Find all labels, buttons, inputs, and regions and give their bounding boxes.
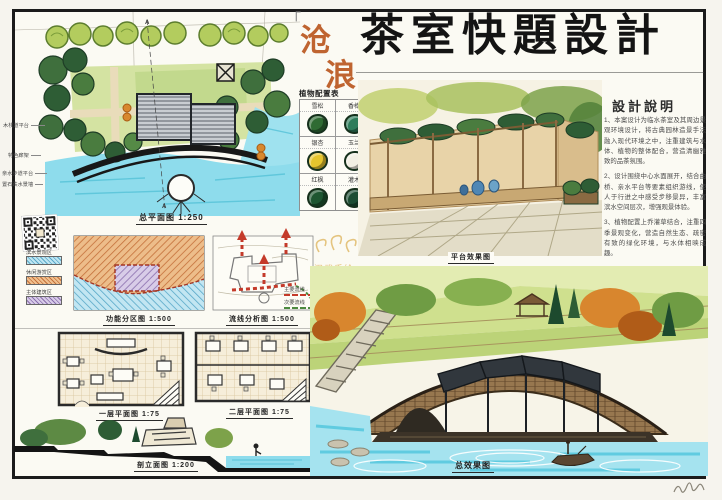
terrace-perspective [358, 80, 602, 256]
zone-legend: 滨水景观区 休闲游赏区 主体建筑区 [26, 249, 72, 309]
plan-annotation: 特色廊架 [8, 152, 41, 159]
final-render-caption: 总效果图 [452, 460, 494, 473]
design-note-item: 3、植物配置上乔灌草结合，注重四季景观变化，营造自然生态、疏密有致的绿化环境，与… [604, 218, 706, 259]
building-annex [191, 104, 235, 144]
zone-swatch [26, 256, 62, 265]
design-notes-header: 設計說明 [612, 96, 676, 115]
building-main [137, 94, 191, 140]
plant-cell: 雪松 [300, 100, 336, 136]
zone-legend-item: 主体建筑区 [26, 289, 72, 305]
section-divider-line [15, 328, 311, 329]
title-divider [356, 72, 704, 73]
plant-swatch [307, 151, 328, 171]
floor-plan-level2 [194, 331, 312, 403]
plant-cell: 红枫 [300, 174, 336, 210]
design-notes: 1、本案设计为临水茶室及其周边景观环境设计，将古典园林造景手法融入现代环境之中，… [604, 116, 706, 264]
section-building [142, 418, 196, 446]
tree-row [46, 22, 288, 48]
plan-annotation: 木栈道平台 [3, 122, 45, 129]
section-trees [20, 419, 140, 447]
final-render [310, 266, 708, 476]
zone-legend-item: 休闲游赏区 [26, 269, 72, 285]
circulation-diagram-caption: 流线分析图 1:500 [226, 314, 298, 326]
section-mark-top: A [145, 20, 149, 26]
function-zone-diagram [73, 235, 205, 311]
zone-swatch [26, 296, 62, 305]
watermark-crown-icon [311, 232, 357, 256]
function-diagram-caption: 功能分区图 1:500 [103, 314, 175, 326]
terrace-caption: 平台效果图 [448, 252, 494, 264]
presentation-board: 「 沧 浪 亭 茶室快題設計 [0, 0, 722, 500]
design-note-item: 2、设计围绕中心水面展开，结合曲桥、亲水平台等要素组织游线，使人于行进之中感受步… [604, 172, 706, 213]
section-mark-bottom: A [162, 204, 166, 210]
plant-swatch [307, 188, 328, 208]
zone-building [115, 265, 159, 291]
board-title: 茶室快題設計 [360, 14, 710, 58]
plant-swatch [307, 114, 328, 134]
section-water [226, 456, 310, 468]
design-note-item: 1、本案设计为临水茶室及其周边景观环境设计，将古典园林造景手法融入现代环境之中，… [604, 116, 706, 167]
section-caption: 剖立面图 1:200 [134, 460, 198, 472]
artist-signature [672, 480, 706, 496]
site-master-plan [15, 12, 300, 216]
figure [254, 444, 261, 456]
plan-annotation: 亲水步道平台 [2, 170, 47, 177]
site-plan-caption: 总平面图 1:250 [136, 212, 207, 225]
floor-plan-level1 [57, 331, 185, 407]
plant-cell: 银杏 [300, 137, 336, 173]
qr-code [21, 214, 59, 252]
pergola [217, 64, 234, 81]
fountain [168, 175, 194, 201]
zone-legend-item: 滨水景观区 [26, 249, 72, 265]
zone-swatch [26, 276, 62, 285]
plan-annotation: 置石跌水景墙 [2, 181, 43, 188]
